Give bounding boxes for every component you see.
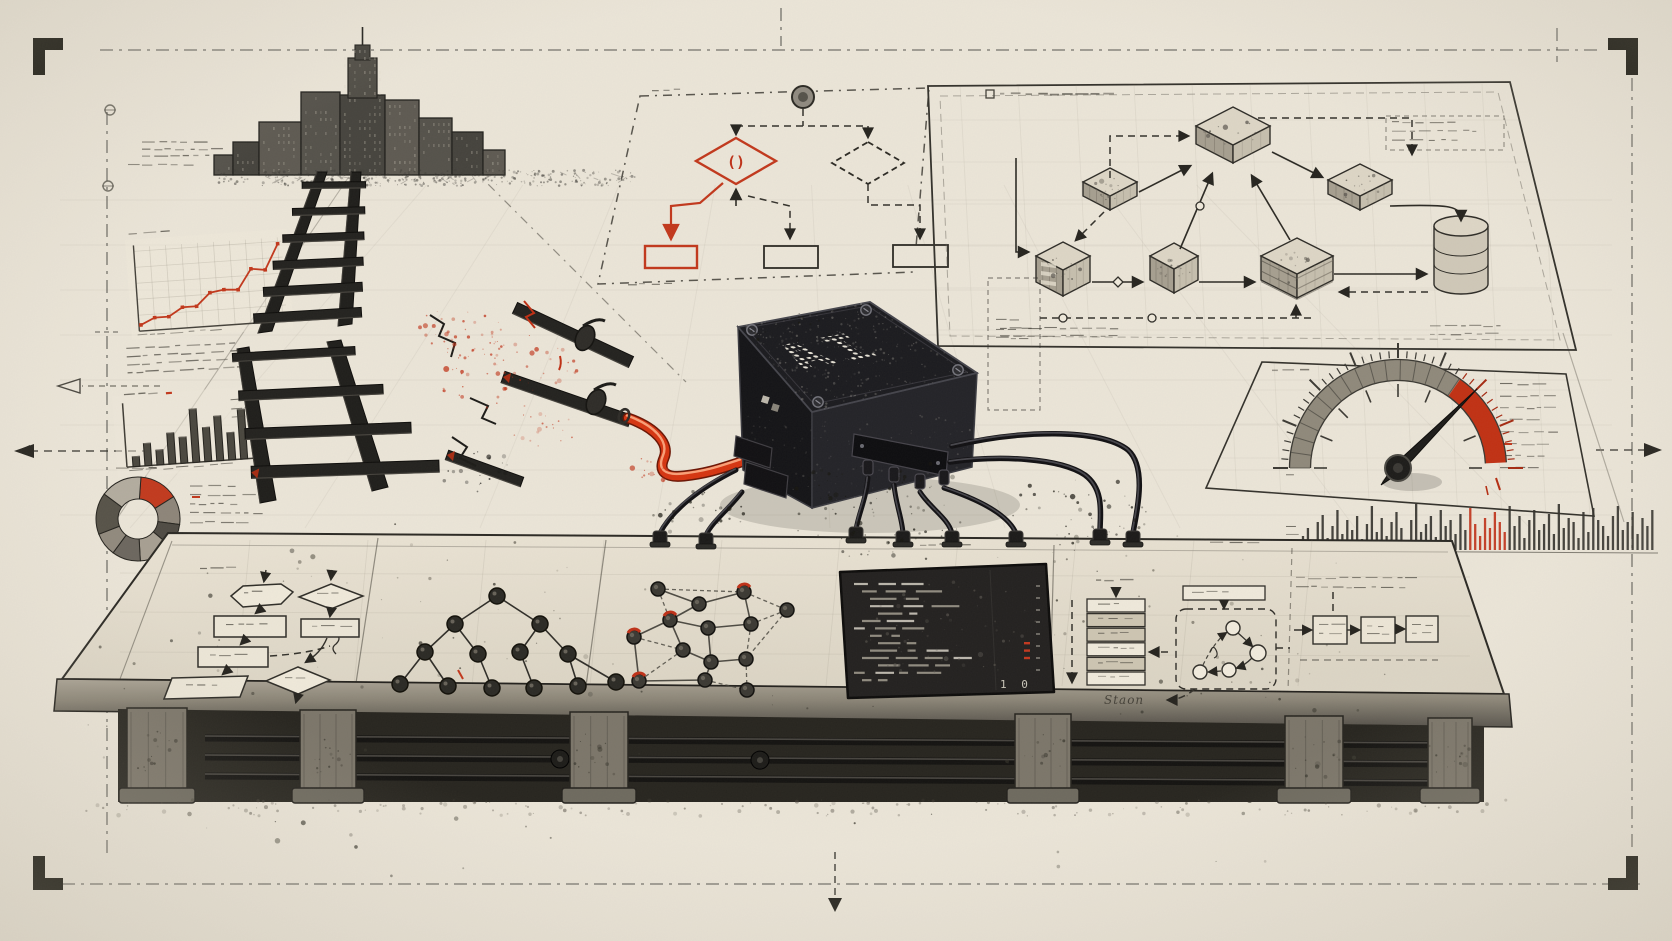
illustration-canvas: AI () Staon 1 0	[0, 0, 1672, 941]
stack-caption: Staon	[1104, 693, 1144, 707]
blueprint-illustration: AI () Staon 1 0	[0, 0, 1672, 941]
decision-diamond-glyph: ()	[727, 153, 745, 171]
terminal-footer: 1 0	[1000, 678, 1032, 691]
